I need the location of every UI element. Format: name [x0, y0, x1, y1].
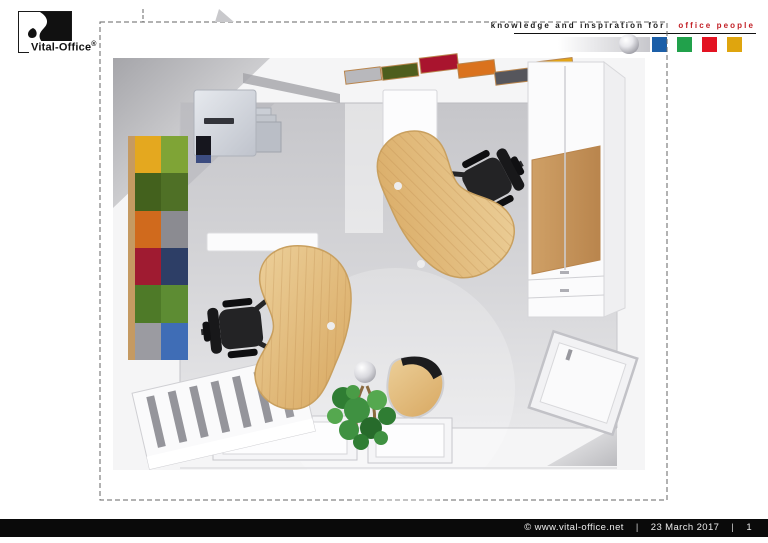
panel-cell [135, 248, 161, 285]
desk-grommet [394, 182, 402, 190]
panel-cell [161, 248, 188, 285]
color-square-gold [727, 37, 742, 52]
panel-cell [135, 211, 161, 248]
drawing-area [95, 8, 675, 508]
panel-cell [135, 136, 161, 173]
tall-cabinet [528, 62, 625, 317]
color-square-red [702, 37, 717, 52]
panel-cell [135, 323, 161, 360]
desk-grommet [417, 260, 425, 268]
panel-cell [161, 211, 188, 248]
tagline-red: office people [678, 21, 755, 30]
panel-cell [161, 173, 188, 211]
acoustic-wall-panel [128, 136, 188, 360]
panel-cell [161, 323, 188, 360]
color-square-green [677, 37, 692, 52]
footer-copyright: © www.vital-office.net [524, 522, 624, 533]
panel-cell [161, 136, 188, 173]
panel-cell [135, 285, 161, 323]
brand-text: Vital-Office® [29, 41, 99, 54]
page: Vital-Office® knowledge and inspiration … [0, 0, 768, 543]
footer-date: 23 March 2017 [651, 522, 720, 533]
desk-grommet [327, 322, 335, 330]
panel-cell [161, 285, 188, 323]
cabinet-wood-doors [532, 146, 600, 274]
footer-page-number: 1 [746, 522, 752, 533]
panel-cell [135, 173, 161, 211]
footer-bar: © www.vital-office.net | 23 March 2017 |… [0, 519, 768, 537]
